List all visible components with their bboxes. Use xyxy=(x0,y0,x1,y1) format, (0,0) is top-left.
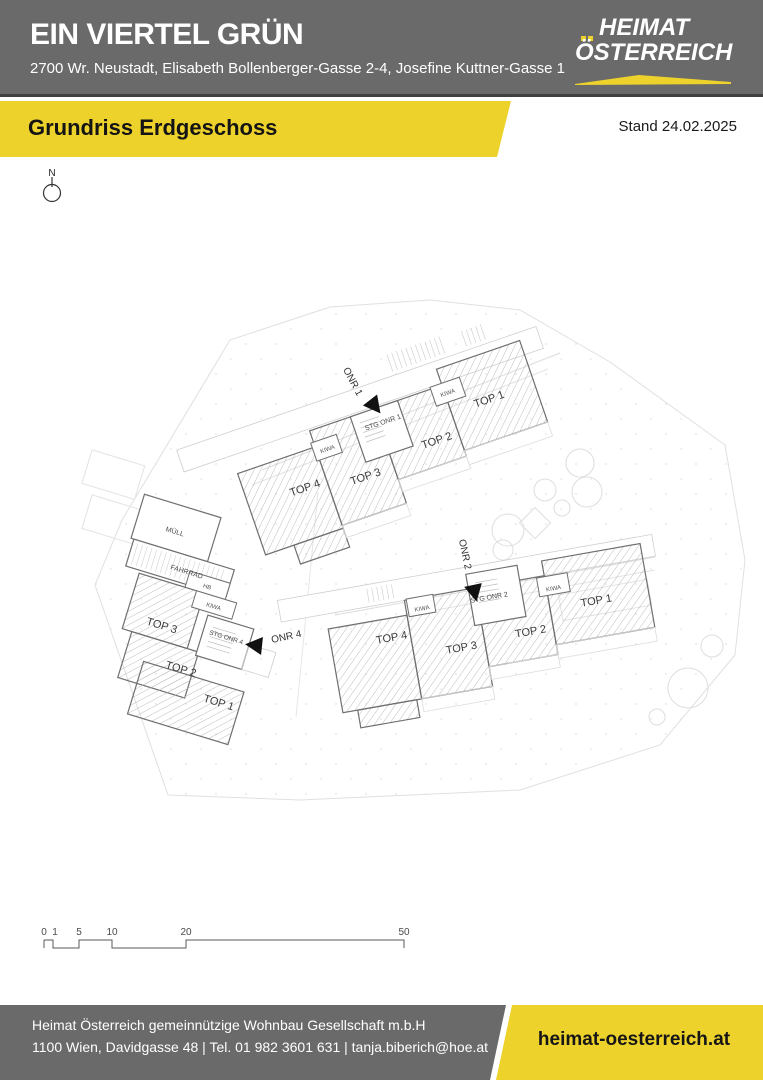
page-title: Grundriss Erdgeschoss xyxy=(28,115,277,141)
logo-text-line1: HEIMAT xyxy=(599,16,689,40)
page: EIN VIERTEL GRÜN 2700 Wr. Neustadt, Elis… xyxy=(0,0,763,1080)
scale-label-20: 20 xyxy=(180,927,192,938)
project-title: EIN VIERTEL GRÜN xyxy=(30,18,303,52)
footer-company: Heimat Österreich gemeinnützige Wohnbau … xyxy=(32,1017,425,1033)
plan-date: Stand 24.02.2025 xyxy=(619,118,737,135)
logo-swoosh-icon xyxy=(573,74,733,86)
scale-bar: 0 1 5 10 20 50 xyxy=(41,927,410,948)
footer-contact: 1100 Wien, Davidgasse 48 | Tel. 01 982 3… xyxy=(32,1039,488,1055)
project-address: 2700 Wr. Neustadt, Elisabeth Bollenberge… xyxy=(30,60,565,77)
footer-band: Heimat Österreich gemeinnützige Wohnbau … xyxy=(0,1005,763,1080)
logo-text-line2: ÖSTERREICH xyxy=(575,41,732,65)
company-logo: HEIMAT ÖSTERREICH xyxy=(573,12,743,90)
floor-plan-drawing: TOP 4 TOP 3 TOP 2 TOP 1 STG ONR 1 KIWA K… xyxy=(0,157,763,1005)
logo-umlaut-dots-icon xyxy=(581,28,595,34)
scale-label-0: 0 xyxy=(41,927,47,938)
north-arrow-icon: N xyxy=(44,168,61,202)
scale-label-5: 5 xyxy=(76,927,82,938)
scale-label-10: 10 xyxy=(106,927,118,938)
scale-label-50: 50 xyxy=(398,927,410,938)
footer-website[interactable]: heimat-oesterreich.at xyxy=(505,1029,763,1051)
header-band: EIN VIERTEL GRÜN 2700 Wr. Neustadt, Elis… xyxy=(0,0,763,97)
scale-label-1: 1 xyxy=(52,927,58,938)
